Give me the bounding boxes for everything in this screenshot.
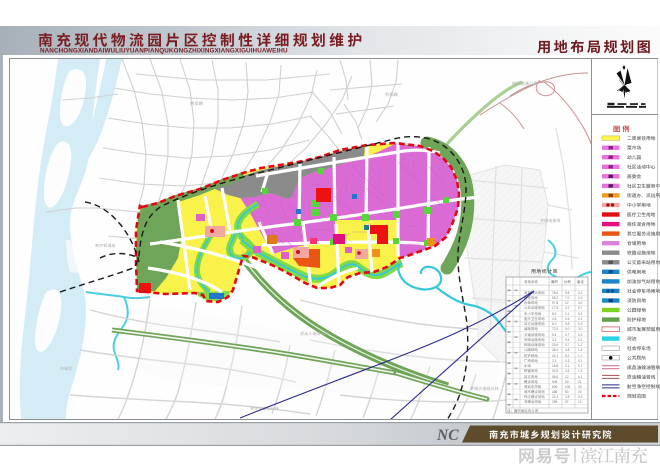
svg-text:3.2: 3.2	[552, 338, 557, 342]
svg-text:9.8: 9.8	[565, 291, 570, 295]
svg-text:21: 21	[578, 380, 582, 384]
svg-text:9.0: 9.0	[565, 327, 570, 331]
svg-text:0.3: 0.3	[578, 322, 583, 326]
svg-text:0.8: 0.8	[565, 322, 570, 326]
svg-text:0.1: 0.1	[578, 338, 583, 342]
svg-text:12: 12	[565, 301, 569, 305]
svg-text:8.9: 8.9	[552, 312, 557, 316]
svg-text:3.8: 3.8	[565, 369, 570, 373]
svg-text:1.7: 1.7	[578, 354, 583, 358]
svg-text:486: 486	[552, 390, 558, 394]
svg-text:NC: NC	[436, 427, 459, 444]
svg-text:7.0: 7.0	[565, 296, 570, 300]
svg-text:16.8: 16.8	[552, 364, 558, 368]
svg-text:5.4: 5.4	[552, 333, 557, 337]
svg-text:17.8: 17.8	[552, 306, 558, 310]
svg-text:0.4: 0.4	[565, 338, 570, 342]
svg-text:97.8: 97.8	[552, 301, 558, 305]
svg-text:0.3: 0.3	[565, 359, 570, 363]
svg-text:60: 60	[565, 390, 569, 394]
svg-text:0.2: 0.2	[578, 333, 583, 337]
svg-text:4.1: 4.1	[578, 375, 583, 379]
svg-text:30.5: 30.5	[552, 369, 558, 373]
svg-text:3.0: 3.0	[578, 327, 583, 331]
svg-text:806: 806	[552, 385, 558, 389]
svg-text:2.2: 2.2	[565, 306, 570, 310]
svg-text:298: 298	[552, 400, 558, 404]
svg-text:12: 12	[578, 400, 582, 404]
svg-text:2.1: 2.1	[565, 364, 570, 368]
svg-text:0.9: 0.9	[578, 395, 583, 399]
svg-text:3.7: 3.7	[565, 343, 570, 347]
svg-text:29.6: 29.6	[552, 343, 558, 347]
svg-text:5.2: 5.2	[565, 354, 570, 358]
svg-text:0.7: 0.7	[578, 364, 583, 368]
svg-text:0.1: 0.1	[578, 359, 583, 363]
svg-text:6.2: 6.2	[552, 322, 557, 326]
svg-text:NANCHONGXIANDAIWULIUYUANPIANQU: NANCHONGXIANDAIWULIUYUANPIANQUKONGZHIXIN…	[40, 48, 288, 55]
svg-text:2.8: 2.8	[565, 395, 570, 399]
svg-text:0.6: 0.6	[565, 317, 570, 321]
svg-text:0.7: 0.7	[565, 333, 570, 337]
svg-text:98.6: 98.6	[552, 375, 558, 379]
svg-text:72.3: 72.3	[552, 327, 558, 331]
svg-text:2.1: 2.1	[552, 359, 557, 363]
svg-text:1.1: 1.1	[565, 312, 570, 316]
svg-text:3.2: 3.2	[578, 291, 583, 295]
svg-text:56.2: 56.2	[552, 296, 558, 300]
svg-text:1.2: 1.2	[578, 343, 583, 347]
svg-text:1.3: 1.3	[578, 369, 583, 373]
svg-text:37: 37	[565, 400, 569, 404]
svg-text:1.6: 1.6	[578, 348, 583, 352]
svg-text:33: 33	[578, 385, 582, 389]
svg-text:2.3: 2.3	[578, 296, 583, 300]
svg-text:4.5: 4.5	[552, 317, 557, 321]
svg-text:78.6: 78.6	[552, 291, 558, 295]
svg-text:0.7: 0.7	[578, 306, 583, 310]
svg-text:38.4: 38.4	[552, 348, 558, 352]
svg-text:42.1: 42.1	[552, 354, 558, 358]
svg-text:0.4: 0.4	[578, 312, 583, 316]
svg-text:4.0: 4.0	[578, 301, 583, 305]
svg-text:4.8: 4.8	[565, 348, 570, 352]
svg-text:0.2: 0.2	[578, 317, 583, 321]
svg-text:12: 12	[565, 375, 569, 379]
svg-text:22.4: 22.4	[552, 395, 558, 399]
svg-text:63: 63	[565, 380, 569, 384]
svg-text:20: 20	[578, 390, 582, 394]
svg-text:100: 100	[565, 385, 571, 389]
svg-text:508: 508	[552, 380, 558, 384]
